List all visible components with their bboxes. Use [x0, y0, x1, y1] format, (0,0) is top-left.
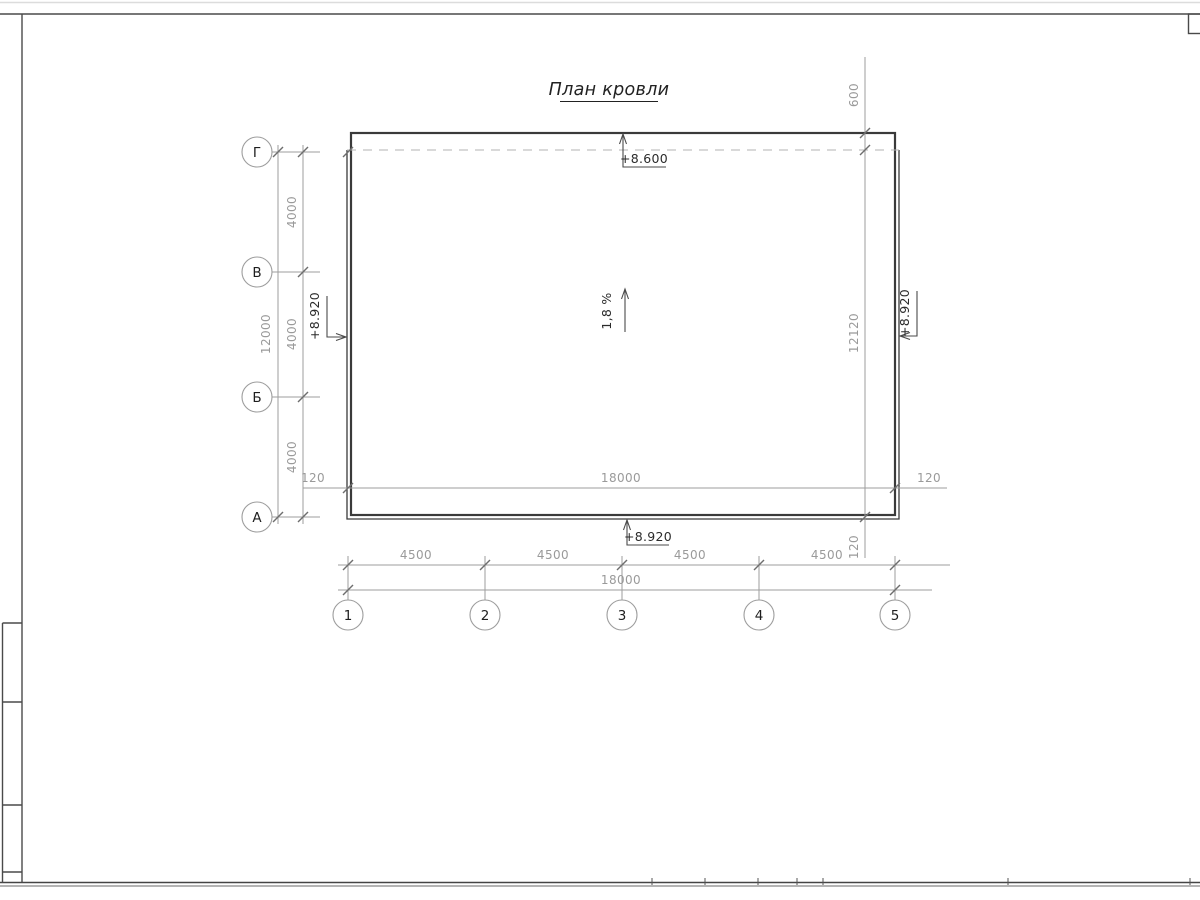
titleblock-column-ticks [652, 878, 1190, 885]
dim-bottom-seg-1: 4500 [400, 548, 432, 562]
elevation-mark-right: +8.920 [897, 289, 917, 340]
axis-label-col-1: 1 [344, 608, 353, 624]
axis-label-col-5: 5 [891, 608, 900, 624]
elevation-value-right: +8.920 [897, 289, 912, 337]
dim-left-total: 12000 [259, 314, 273, 354]
frame-corner-box [1189, 14, 1200, 34]
dim-bottom-seg-2: 4500 [537, 548, 569, 562]
axis-label-col-3: 3 [618, 608, 627, 624]
axis-label-col-2: 2 [481, 608, 490, 624]
slope-value: 1,8 % [599, 292, 614, 329]
drawing-sheet: План кровли Г В Б А 1 [0, 0, 1200, 900]
axis-label-row-g: Г [253, 145, 261, 161]
elevation-mark-left: +8.920 [307, 292, 346, 341]
dim-left-seg-3: 4000 [285, 441, 299, 473]
axis-label-row-a: А [252, 510, 262, 526]
axis-label-row-b: Б [252, 390, 261, 406]
dim-right-top: 600 [847, 83, 861, 107]
building-outlines [347, 133, 899, 519]
drawing-title: План кровли [549, 80, 670, 102]
elevation-mark-top: +8.600 [620, 134, 669, 167]
dim-inner-right-offset: 120 [917, 471, 941, 485]
wall-overhang-outline [347, 150, 899, 519]
axis-label-col-4: 4 [755, 608, 764, 624]
axis-label-row-v: В [252, 265, 261, 281]
column-axes: 1 2 3 4 5 [333, 556, 910, 630]
dim-bottom-seg-3: 4500 [674, 548, 706, 562]
elevation-mark-bottom: +8.920 [624, 520, 673, 545]
elevation-value-bottom: +8.920 [624, 529, 672, 544]
dimension-ticks [273, 128, 900, 595]
elevation-value-top: +8.600 [620, 151, 668, 166]
dim-inner-width: 18000 [601, 471, 641, 485]
dim-right-bottom-offset: 120 [847, 535, 861, 559]
dim-bottom-seg-4: 4500 [811, 548, 843, 562]
dim-left-seg-2: 4000 [285, 318, 299, 350]
dim-inner-left-offset: 120 [301, 471, 325, 485]
left-margin-boxes [3, 623, 23, 883]
slope-mark: 1,8 % [599, 289, 629, 332]
dim-left-seg-1: 4000 [285, 196, 299, 228]
dim-right-total: 12120 [847, 313, 861, 353]
page-title: План кровли [549, 80, 670, 100]
dim-bottom-total: 18000 [601, 573, 641, 587]
elevation-value-left: +8.920 [307, 292, 322, 340]
roof-outline [351, 133, 895, 515]
sheet-frame [0, 3, 1200, 887]
roof-plan-canvas: План кровли Г В Б А 1 [0, 0, 1200, 900]
